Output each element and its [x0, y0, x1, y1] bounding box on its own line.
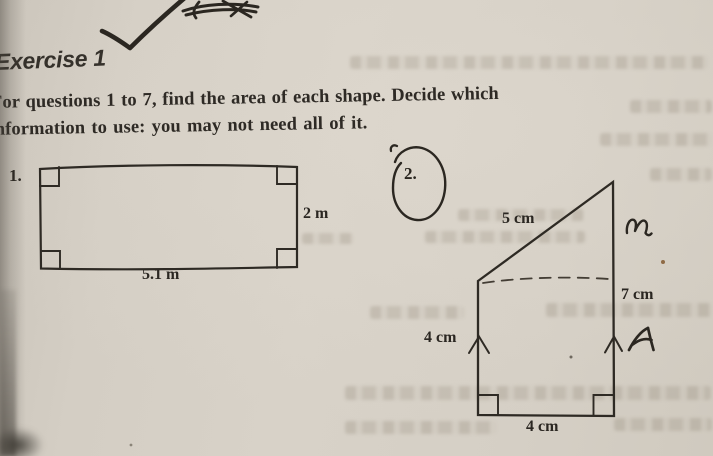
handwritten-a-mark: [632, 339, 652, 345]
scribble-mark: [183, 4, 258, 11]
rectangle-shape: [40, 165, 297, 269]
corner-shadow: [0, 427, 44, 456]
right-angle-mark: [277, 249, 297, 268]
circle-annotation-tail: [391, 145, 397, 151]
right-angle-mark: [40, 167, 59, 186]
right-angle-mark: [41, 251, 60, 269]
ghost-text-line: [614, 418, 712, 431]
q2-right-label: 7 cm: [621, 286, 653, 304]
right-angle-mark: [594, 395, 614, 416]
right-angle-mark: [478, 395, 498, 415]
scribble-mark: [231, 2, 247, 16]
ink-speck: [570, 356, 573, 359]
scribble-mark: [223, 1, 251, 17]
ghost-text-line: [650, 168, 712, 181]
q2-slant-label: 5 cm: [502, 210, 534, 228]
ghost-text-line: [345, 421, 497, 434]
scribble-mark: [186, 10, 256, 15]
q2-base-label: 4 cm: [526, 418, 558, 436]
circle-annotation: [393, 147, 445, 220]
textbook-page: Exercise 1 For questions 1 to 7, find th…: [0, 0, 713, 456]
ghost-text-line: [546, 303, 712, 317]
parallel-arrow-mark: [469, 337, 489, 354]
right-angle-mark: [277, 166, 297, 184]
ghost-text-line: [425, 231, 585, 243]
ghost-text-line: [350, 56, 708, 69]
parallel-arrow-mark: [605, 337, 622, 353]
ink-speck: [130, 444, 133, 447]
scribble-mark: [194, 2, 199, 18]
q1-height-label: 2 m: [303, 205, 328, 223]
handwritten-a-mark: [629, 328, 648, 350]
ghost-text-line: [600, 133, 712, 146]
ghost-text-line: [370, 306, 464, 319]
q1-base-label: 5.1 m: [142, 266, 179, 284]
question-1-diagram: [40, 165, 297, 269]
trapezoid-shape: [478, 182, 614, 416]
question-1-number: 1.: [9, 166, 22, 186]
diagram-layer: [0, 0, 713, 456]
question-2-diagram: [469, 182, 622, 416]
ghost-text-line: [302, 233, 354, 244]
handwritten-a-mark: [648, 328, 654, 350]
checkmark-icon: [102, 0, 187, 48]
q2-left-label: 4 cm: [424, 329, 456, 347]
ghost-text-line: [630, 100, 712, 113]
exercise-title: Exercise 1: [0, 45, 106, 76]
handwritten-m-mark: [627, 220, 652, 235]
instruction-line-1: For questions 1 to 7, find the area of e…: [0, 84, 499, 114]
dashed-height-line: [483, 278, 609, 283]
ghost-text-line: [345, 386, 711, 400]
ink-speck: [661, 260, 665, 264]
instruction-text: For questions 1 to 7, find the area of e…: [0, 0, 713, 1]
question-2-number: 2.: [404, 164, 417, 184]
instruction-line-2: information to use: you may not need all…: [0, 113, 368, 141]
pen-annotations: [102, 0, 665, 446]
